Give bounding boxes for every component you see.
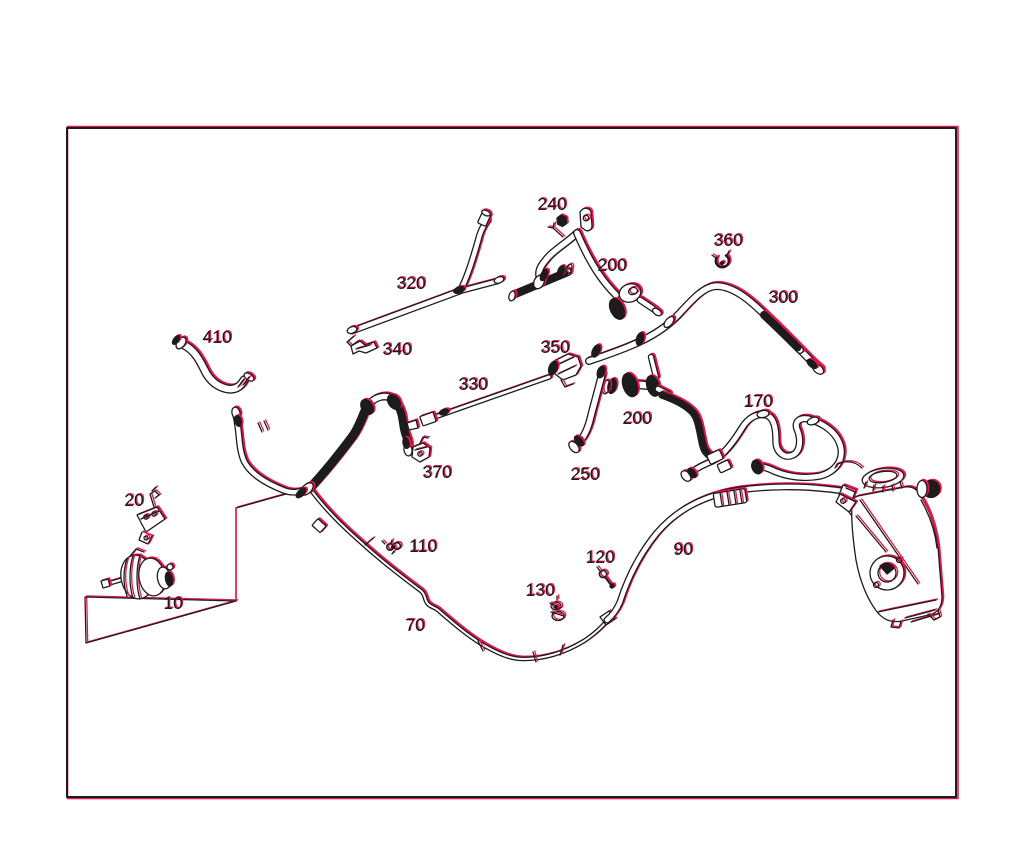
- part-label-340[interactable]: 340: [382, 339, 411, 359]
- hose-90-group: [600, 484, 858, 625]
- diagram-artwork: [67, 127, 958, 799]
- part-label-200[interactable]: 200: [597, 255, 626, 275]
- part-label-250[interactable]: 250: [570, 464, 599, 484]
- clip-360-group: [712, 250, 731, 267]
- diagram-page: 2402403603602002003203203003004104103403…: [0, 0, 1024, 851]
- leader-lines: [85, 486, 313, 643]
- part-label-70[interactable]: 70: [405, 615, 425, 635]
- part-label-20[interactable]: 20: [124, 490, 144, 510]
- hose-170-drop-layers: [662, 394, 718, 459]
- clip-340-group: [351, 340, 379, 354]
- part-label-170[interactable]: 170: [743, 391, 772, 411]
- leader-triangle-accent-offset: [87, 596, 238, 642]
- part-label-130[interactable]: 130: [525, 580, 554, 600]
- clip-360-dot: [721, 262, 724, 265]
- part-label-360[interactable]: 360: [713, 230, 742, 250]
- part-label-240[interactable]: 240: [537, 194, 566, 214]
- pipe-70-layers: [311, 489, 608, 659]
- pipe-330-coupling: [420, 412, 436, 426]
- bundle-left-hose-layers: [236, 415, 311, 492]
- hose-200-ribseg-end: [508, 290, 516, 301]
- part-label-370[interactable]: 370: [422, 462, 451, 482]
- border-frame: [67, 127, 958, 799]
- part-350-group: [547, 353, 583, 387]
- pipe-70-layers-part: [313, 489, 608, 658]
- pipe-320-mouth-right: [493, 275, 504, 284]
- hose-200-upper-group: [508, 207, 665, 322]
- part-label-320[interactable]: 320: [396, 273, 425, 293]
- corrugated-hose-group: [295, 391, 415, 499]
- hose-170-loops-layers: [716, 413, 843, 477]
- pipe-320-mouth: [346, 325, 358, 334]
- pipe-320-upper-layers-part: [460, 221, 487, 291]
- parts-diagram-canvas: 2402403603602002003203203003004104103403…: [0, 0, 1024, 851]
- corrugated-hose-layers: [309, 408, 368, 489]
- pipe-70-layers-part: [311, 490, 606, 659]
- clamp-130-dot: [555, 606, 558, 609]
- hose-300-ribbed-section-layers-part: [764, 315, 800, 350]
- hose-250-group: [567, 364, 608, 454]
- part-label-90[interactable]: 90: [673, 539, 693, 559]
- hose-300-ribbed-section-layers: [764, 314, 802, 350]
- hose-250-layers: [577, 373, 604, 444]
- pipe-320-main-layers: [352, 290, 462, 331]
- hose-300-ring: [662, 315, 676, 329]
- hose-90-layers-part: [607, 487, 851, 620]
- hose-170-drop-layers-part: [664, 394, 718, 458]
- hose-410-layers-part: [184, 345, 244, 389]
- pipe-70-joint-ticks: [365, 538, 563, 662]
- hose-170-junction-b: [717, 460, 732, 473]
- pump-10-nozzle-tip: [101, 579, 110, 588]
- clip-120-tip: [610, 584, 614, 588]
- pipe-320-upper-layers: [460, 220, 489, 291]
- clip-110-dot: [392, 546, 395, 549]
- nut-240: [557, 215, 567, 227]
- hose-410-layers: [184, 344, 246, 389]
- frame-black-line: [67, 128, 956, 797]
- valve-200-stub-up-layers: [651, 356, 658, 377]
- valve-200-mid-group: [601, 356, 670, 399]
- tank-right-port-collar: [917, 481, 927, 498]
- hose-90-layers: [607, 486, 853, 620]
- frame-accent-line: [68, 127, 959, 799]
- pipe-320-main-layers-part: [352, 291, 460, 331]
- pipe-70-group: [311, 489, 608, 662]
- part-label-410[interactable]: 410: [202, 327, 231, 347]
- pipe-70-layers-part: [311, 490, 606, 659]
- part-label-10[interactable]: 10: [163, 593, 183, 613]
- part-label-350[interactable]: 350: [540, 337, 569, 357]
- clip-370-group: [412, 436, 432, 462]
- part-label-110[interactable]: 110: [409, 536, 437, 556]
- pump-10-bolt: [167, 564, 173, 570]
- bundle-left-hose-layers-part: [238, 415, 311, 491]
- bundle-left-hose-group: [231, 405, 311, 492]
- clip-120-group: [597, 566, 616, 588]
- part-label-200[interactable]: 200: [622, 408, 651, 428]
- clip-110-group: [382, 539, 402, 554]
- part-label-330[interactable]: 330: [458, 374, 487, 394]
- part-350-foot: [561, 380, 573, 387]
- part-label-300[interactable]: 300: [768, 287, 797, 307]
- part-label-120[interactable]: 120: [585, 547, 614, 567]
